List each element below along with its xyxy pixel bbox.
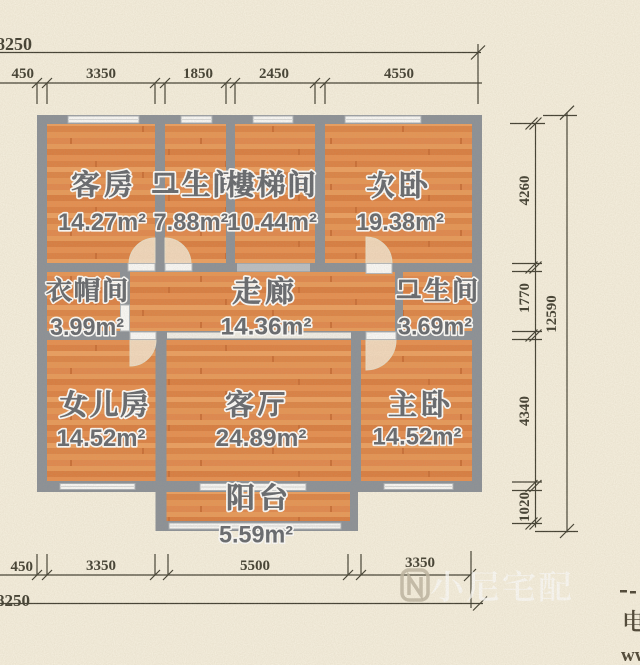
svg-text:3350: 3350 [86,558,116,574]
svg-text:5500: 5500 [240,558,270,574]
svg-text:ww: ww [621,645,640,665]
svg-text:2450: 2450 [259,66,289,82]
svg-text:14.52m²: 14.52m² [57,425,146,452]
svg-text:4260: 4260 [517,176,533,206]
svg-text:8250: 8250 [0,34,32,54]
svg-text:24.89m²: 24.89m² [216,425,307,452]
svg-text:3.69m²: 3.69m² [398,314,472,341]
svg-text:12590: 12590 [544,295,560,333]
svg-text:8250: 8250 [0,591,30,610]
svg-text:7.88m²: 7.88m² [154,209,229,236]
svg-text:3350: 3350 [86,66,116,82]
svg-text:1850: 1850 [183,66,213,82]
svg-text:10.44m²: 10.44m² [227,209,317,236]
svg-text:14.27m²: 14.27m² [58,209,146,236]
svg-text:3.99m²: 3.99m² [50,314,124,341]
svg-text:1770: 1770 [517,283,533,313]
svg-text:19.38m²: 19.38m² [356,209,444,236]
svg-text:14.52m²: 14.52m² [373,424,462,451]
svg-text:5.59m²: 5.59m² [219,522,293,549]
svg-text:450: 450 [12,66,35,82]
svg-text:1020: 1020 [517,492,533,522]
svg-text:4550: 4550 [384,66,414,82]
svg-text:450: 450 [11,559,34,575]
svg-text:4340: 4340 [517,396,533,426]
svg-text:14.36m²: 14.36m² [221,314,312,341]
